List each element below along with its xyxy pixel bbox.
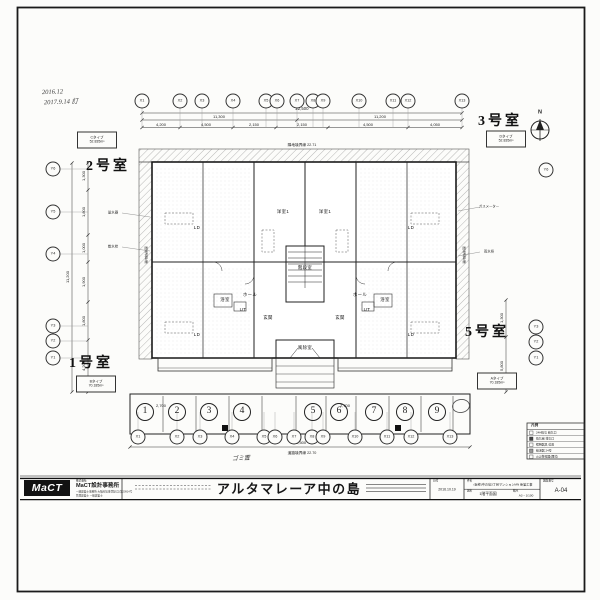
boundary-top-label: 隣地境界線 22.71 — [288, 144, 317, 148]
unit-label-room2: 2号室 — [86, 160, 130, 174]
plan-room-label: ホール — [243, 293, 257, 297]
plan-room-label: 風除室 — [298, 346, 312, 350]
plan-room-label: LD — [408, 226, 414, 230]
dim-label-right: 5,800 — [500, 361, 504, 371]
dim-left-total: 11,200 — [66, 271, 70, 283]
parking-space-number: 7 — [365, 403, 383, 421]
boundary-hatch — [139, 149, 469, 359]
staircase — [286, 246, 324, 302]
boundary-left-label: 隣地境界線 — [143, 247, 146, 264]
grid-bubble-y-left: Y6 — [46, 162, 61, 177]
company-license-2: 管理建築士 一級建築士 — [76, 496, 103, 499]
type-box-a: Aタイプ 70.185m² — [477, 373, 517, 390]
grid-bubble-y-left: Y4 — [46, 247, 61, 262]
plan-room-label: LD — [408, 333, 414, 337]
plan-note: 散水栓 — [108, 245, 118, 248]
sheet-no-value: A-04 — [555, 488, 568, 494]
parking-stall-dim: 2,700 — [156, 404, 166, 408]
handwritten-note: ゴミ置 — [232, 456, 250, 463]
project-name-value: (仮称)中の島3丁目マンションMN 新築工事 — [474, 483, 533, 486]
boundary-bottom-label: 道路境界線 22.70 — [288, 452, 317, 456]
grid-bubble-x-bottom: X9 — [316, 430, 331, 445]
plan-room-label: 洋室1 — [277, 210, 289, 214]
dim-label-left: 1,800 — [82, 207, 86, 217]
grid-bubble-x-top: X13 — [455, 94, 470, 109]
plan-note: ガスメーター — [479, 205, 499, 208]
type-c-area: 52.835m² — [90, 141, 105, 145]
boundary-right-label: 隣地境界線 — [461, 247, 464, 264]
grid-bubble-x-top: X6 — [270, 94, 285, 109]
grid-bubble-x-top: X11 — [386, 94, 401, 109]
legend-row: 24H換気 給気口 — [536, 432, 557, 435]
dim-top-right-half: 11,200 — [374, 115, 386, 119]
grid-bubble-y-right: Y6 — [539, 163, 554, 178]
dimension-ticks — [70, 111, 507, 448]
plan-room-label: 玄関 — [263, 316, 273, 320]
grid-bubble-y-left: Y3 — [46, 319, 61, 334]
grid-bubble-x-top: X2 — [173, 94, 188, 109]
grid-bubble-y-right: Y2 — [529, 335, 544, 350]
north-compass-icon — [531, 119, 549, 141]
parking-space-number: 4 — [233, 403, 251, 421]
grid-bubble-x-top: X9 — [316, 94, 331, 109]
sheet-name-value: 1階平面図 — [479, 493, 496, 497]
dim-label-top: 4,050 — [430, 123, 440, 127]
type-b-area: 70.185m² — [89, 385, 104, 389]
grid-leader-lines — [60, 108, 462, 430]
parking-space-number: 3 — [200, 403, 218, 421]
floorplan-drawing — [0, 0, 600, 600]
grid-bubble-x-bottom: X10 — [348, 430, 363, 445]
dim-label-top: 4,500 — [201, 123, 211, 127]
date-value: 2016.10.19 — [438, 488, 456, 492]
grid-bubble-x-top: X12 — [401, 94, 416, 109]
plan-room-label: LD — [194, 333, 200, 337]
plan-room-label: ホール — [353, 293, 367, 297]
dim-top-left-half: 11,300 — [213, 115, 225, 119]
furniture-dashed — [165, 213, 439, 333]
dim-label-left: 1,800 — [82, 316, 86, 326]
unit-label-room3: 3号室 — [478, 115, 522, 129]
grid-bubble-y-right: Y1 — [529, 351, 544, 366]
legend-title: 凡例 — [531, 425, 538, 429]
grid-bubble-x-top: X3 — [195, 94, 210, 109]
grid-bubble-x-bottom: X11 — [380, 430, 395, 445]
dim-label-top: 4,200 — [156, 123, 166, 127]
dim-label-top: 4,500 — [363, 123, 373, 127]
unit-label-room1: 1号室 — [69, 357, 113, 371]
grid-bubble-x-bottom: X12 — [404, 430, 419, 445]
grid-bubble-x-bottom: X6 — [268, 430, 283, 445]
legend-row: 給湯器 24号 — [536, 450, 552, 453]
plan-room-label: 浴室 — [220, 298, 230, 302]
plan-room-label: 洋室1 — [319, 210, 331, 214]
dim-label-left: 1,000 — [82, 243, 86, 253]
grid-bubble-x-bottom: X7 — [287, 430, 302, 445]
legend-row: 換気扇 排気口 — [536, 438, 554, 441]
grid-bubble-x-top: X1 — [135, 94, 150, 109]
plan-room-label: 階段室 — [298, 266, 312, 270]
room-texture — [156, 166, 452, 354]
parking-space-number: 8 — [396, 403, 414, 421]
dim-label-right: 1,300 — [500, 313, 504, 323]
dim-label-top: 2,150 — [297, 123, 307, 127]
plan-room-label: UT — [364, 308, 371, 312]
grid-bubble-x-top: X7 — [290, 94, 305, 109]
parking-space-number: 9 — [428, 403, 446, 421]
company-logo: MaCT — [24, 480, 70, 496]
sheet-name-label: 図名 — [467, 490, 472, 493]
building-outline — [152, 162, 456, 358]
legend-row: 火災警報器(煙式) — [536, 456, 558, 459]
unit-label-room5: 5号室 — [465, 326, 509, 340]
parking-space-number: 5 — [304, 403, 322, 421]
handwritten-date-1: 2016.12 — [42, 89, 63, 96]
parking-stall-dim: 2,700 — [340, 404, 350, 408]
parking-space-number: 1 — [136, 403, 154, 421]
balconies — [158, 358, 452, 371]
dim-label-left: 1,900 — [82, 277, 86, 287]
handwritten-date-2: 2017.9.14 訂 — [44, 99, 78, 107]
type-a-area: 70.185m² — [490, 382, 505, 386]
grid-bubble-y-left: Y5 — [46, 205, 61, 220]
handwritten-circle — [452, 398, 471, 413]
legend-row: 照明器具 位置 — [536, 444, 554, 447]
project-name-label: 件名 — [467, 480, 472, 483]
project-title: アルタマレーア中の島 — [217, 483, 361, 496]
company-name: MaCT設計事務所 — [76, 484, 119, 490]
type-box-d: Dタイプ 52.835m² — [486, 131, 526, 148]
dimension-lines — [72, 113, 506, 447]
grid-bubble-x-bottom: X4 — [225, 430, 240, 445]
grid-bubble-x-bottom: X2 — [170, 430, 185, 445]
date-label: 日付 — [433, 480, 438, 483]
scale-value: A3・1/100 — [519, 494, 534, 497]
plan-note: 雨水枡 — [484, 250, 494, 253]
grid-bubble-y-left: Y1 — [46, 351, 61, 366]
dim-label-left: 4,200 — [82, 361, 86, 371]
drawing-sheet: 2016.12 2017.9.14 訂 ゴミ置 2号室 3号室 1号室 5号室 … — [0, 0, 600, 600]
compass-north-label: N — [538, 110, 542, 116]
grid-bubble-x-bottom: X1 — [131, 430, 146, 445]
parking-space-number: 2 — [168, 403, 186, 421]
type-box-b: Bタイプ 70.185m² — [76, 376, 116, 393]
plan-note: 量水器 — [108, 211, 118, 214]
type-box-c: Cタイプ 52.835m² — [77, 132, 117, 149]
grid-bubble-y-right: Y3 — [529, 320, 544, 335]
grid-bubble-x-bottom: X13 — [443, 430, 458, 445]
grid-bubble-x-top: X4 — [226, 94, 241, 109]
legend-box — [527, 423, 584, 459]
grid-bubble-x-top: X10 — [352, 94, 367, 109]
dim-label-left: 1,300 — [82, 171, 86, 181]
sheet-no-label: 図面番号 — [543, 480, 554, 483]
note-leaders — [122, 207, 480, 256]
plan-room-label: 玄関 — [335, 316, 345, 320]
scale-label: 縮尺 — [513, 490, 518, 493]
dim-label-top: 2,150 — [249, 123, 259, 127]
plan-room-label: 浴室 — [380, 298, 390, 302]
type-d-area: 52.835m² — [499, 140, 514, 144]
interior-walls — [152, 162, 456, 358]
plan-room-label: LD — [194, 226, 200, 230]
plan-room-label: UT — [240, 308, 247, 312]
grid-bubble-x-bottom: X3 — [193, 430, 208, 445]
grid-bubble-y-left: Y2 — [46, 334, 61, 349]
